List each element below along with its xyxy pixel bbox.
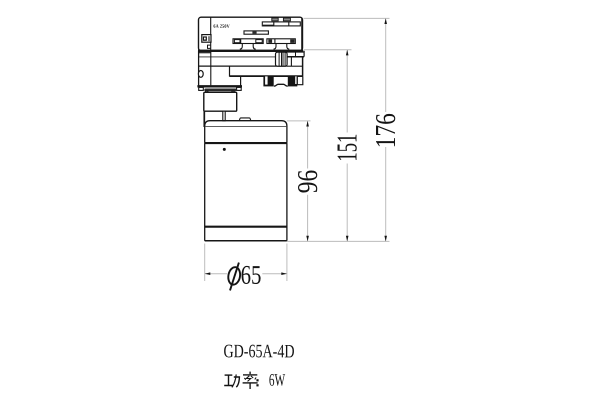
svg-text:96: 96 [293,170,324,194]
svg-text:151: 151 [332,134,363,162]
svg-text:176: 176 [371,113,402,148]
svg-text:GD-65A-4D: GD-65A-4D [223,341,294,362]
svg-text:6W: 6W [269,370,286,390]
svg-text:6A 250V: 6A 250V [213,25,230,30]
svg-text:65: 65 [241,260,262,290]
